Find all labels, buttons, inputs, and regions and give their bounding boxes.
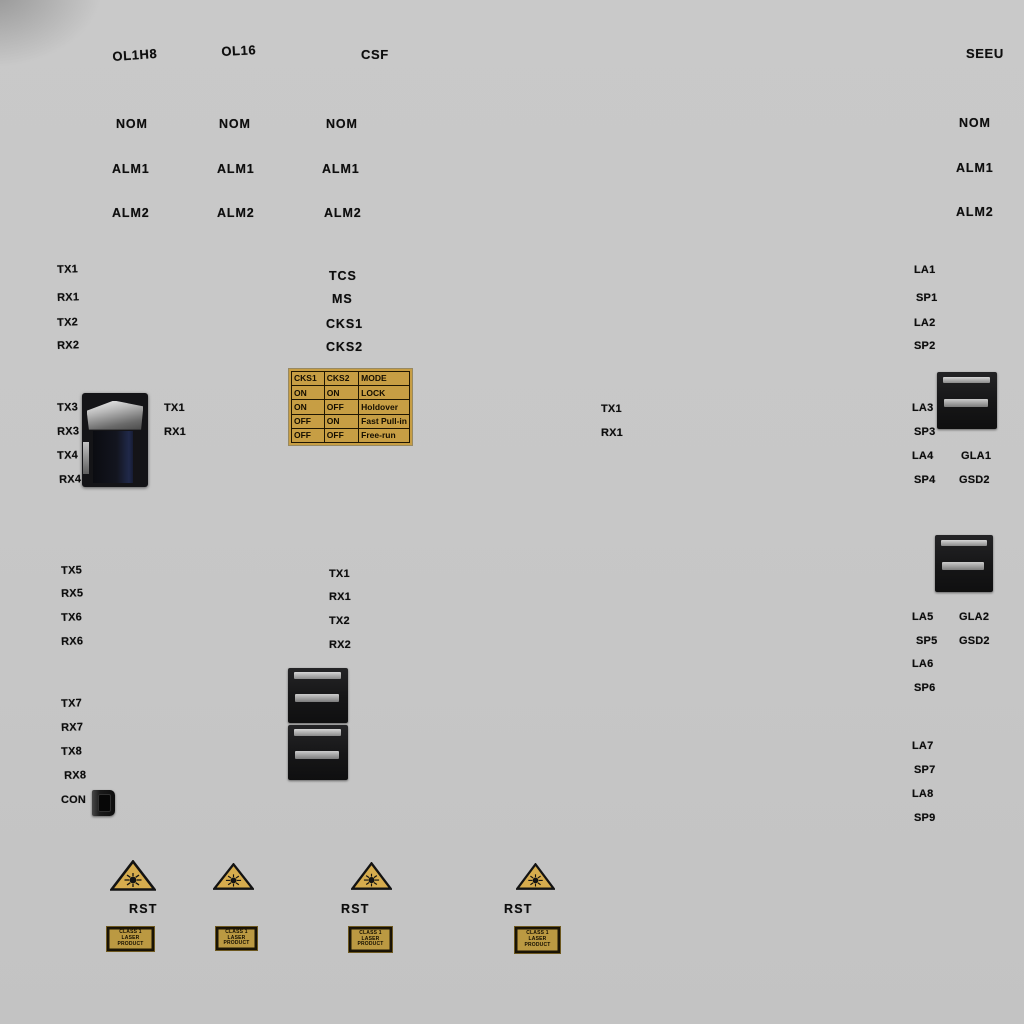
mode-table-row: OFFOFFFree-run [292,428,410,442]
port-label-rx7: RX7 [61,722,83,734]
mode-table-cell: OFF [292,414,325,428]
mode-table-header: CKS1 [292,372,325,386]
connector-latch [295,751,339,759]
mode-table-row: ONOFFHoldover [292,400,410,414]
signal-label-ms: MS [332,293,353,306]
mode-table-cell: ON [324,414,358,428]
con-port[interactable] [92,790,115,816]
led-label-nom: NOM [219,118,251,131]
port-label-la7: LA7 [912,741,933,752]
board-title-ol16: OL16 [221,43,257,58]
port-label-la3: LA3 [912,403,933,414]
port-label-la8: LA8 [912,789,933,800]
port-label-rx5: RX5 [61,588,83,600]
port-label-rx6: RX6 [61,636,83,648]
port-label-sp2: SP2 [914,341,935,352]
port-label-tx2: TX2 [329,616,350,627]
connector-part [83,442,89,474]
led-label-alm2: ALM2 [217,207,255,220]
sticker-line: PRODUCT [357,942,383,948]
port-label-la1: LA1 [914,265,935,276]
connector-latch [294,672,341,679]
port-label-gsd2: GSD2 [959,636,990,647]
board-title-csf: CSF [361,48,389,61]
fiber-connector-right-top[interactable] [937,372,997,429]
led-label-alm1: ALM1 [217,163,255,176]
led-label-alm2: ALM2 [112,207,150,220]
port-label-rx2: RX2 [329,640,351,651]
laser-warning-icon [110,860,156,891]
port-label-tx7: TX7 [61,698,82,710]
port-label-con: CON [61,795,86,806]
sticker-line: PRODUCT [524,943,550,949]
port-label-sp3: SP3 [914,427,935,438]
mode-table-cell: LOCK [359,386,410,400]
fiber-connector-center-top[interactable] [288,668,348,723]
signal-label-tcs: TCS [329,270,357,283]
clock-mode-table: CKS1CKS2MODEONONLOCKONOFFHoldoverOFFONFa… [289,369,412,445]
port-label-tx2: TX2 [57,317,78,329]
connector-latch [944,399,988,407]
port-label-gsd2: GSD2 [959,475,990,486]
connector-latch [942,562,984,570]
class1-laser-sticker: CLASS 1LASERPRODUCT [515,927,560,953]
class1-laser-sticker: CLASS 1LASERPRODUCT [349,927,392,952]
led-label-alm1: ALM1 [322,163,360,176]
sticker-line: PRODUCT [117,942,143,948]
fiber-connector-center-bottom[interactable] [288,725,348,780]
port-label-tx1: TX1 [57,264,78,276]
connector-socket [98,794,110,813]
port-label-rx8: RX8 [64,770,86,782]
port-label-sp6: SP6 [914,683,935,694]
mode-table-cell: ON [292,386,325,400]
board-title-ol1h8: OL1H8 [112,47,158,63]
led-label-nom: NOM [959,117,991,130]
port-label-sp1: SP1 [916,293,937,304]
port-label-la2: LA2 [914,318,935,329]
port-label-rx1: RX1 [57,292,79,304]
telecom-equipment-front-panel: OL1H8OL16CSFSEEUNOMNOMNOMNOMALM1ALM1ALM1… [0,0,1024,1024]
mode-table-row: OFFONFast Pull-in [292,414,410,428]
led-label-alm2: ALM2 [956,206,994,219]
port-label-rx3: RX3 [57,426,79,438]
fiber-connector-left[interactable] [82,393,148,487]
fiber-connector-right-mid[interactable] [935,535,993,592]
port-label-gla2: GLA2 [959,612,989,623]
led-label-alm2: ALM2 [324,207,362,220]
rst-label-rst: RST [341,903,370,916]
connector-part [93,431,134,484]
led-label-alm1: ALM1 [956,162,994,175]
port-label-rx1: RX1 [601,428,623,439]
port-label-sp9: SP9 [914,813,935,824]
laser-warning-icon [516,863,555,890]
class1-laser-sticker: CLASS 1LASERPRODUCT [107,927,154,951]
port-label-sp5: SP5 [916,636,937,647]
board-title-seeu: SEEU [966,47,1004,60]
mode-table-row: ONONLOCK [292,386,410,400]
mode-table-cell: OFF [324,428,358,442]
port-label-tx6: TX6 [61,612,82,624]
connector-latch [941,540,987,547]
port-label-la6: LA6 [912,659,933,670]
mode-table-header: MODE [359,372,410,386]
laser-warning-icon [213,863,254,890]
port-label-tx5: TX5 [61,565,82,577]
port-label-rx2: RX2 [57,340,79,352]
connector-latch [294,729,341,736]
port-label-tx3: TX3 [57,402,78,414]
led-label-alm1: ALM1 [112,163,150,176]
port-label-tx4: TX4 [57,450,78,462]
mode-table-cell: Fast Pull-in [359,414,410,428]
connector-part [87,401,144,430]
mode-table-cell: Holdover [359,400,410,414]
connector-latch [295,694,339,702]
mode-table-cell: OFF [292,428,325,442]
port-label-tx1: TX1 [164,403,185,414]
port-label-tx1: TX1 [329,569,350,580]
led-label-nom: NOM [326,118,358,131]
mode-table-cell: ON [324,386,358,400]
mode-table-header: CKS2 [324,372,358,386]
signal-label-cks2: CKS2 [326,341,363,354]
port-label-rx1: RX1 [164,427,186,438]
mode-table-cell: OFF [324,400,358,414]
connector-latch [943,377,990,384]
led-label-nom: NOM [116,118,148,131]
mode-table-cell: Free-run [359,428,410,442]
laser-warning-icon [351,862,392,890]
signal-label-cks1: CKS1 [326,318,363,331]
port-label-tx1: TX1 [601,404,622,415]
rst-label-rst: RST [504,903,533,916]
port-label-sp7: SP7 [914,765,935,776]
port-label-rx4: RX4 [59,474,81,486]
mode-table-cell: ON [292,400,325,414]
port-label-la5: LA5 [912,612,933,623]
port-label-tx8: TX8 [61,746,82,758]
port-label-sp4: SP4 [914,475,935,486]
sticker-line: PRODUCT [223,941,249,947]
port-label-rx1: RX1 [329,592,351,603]
port-label-gla1: GLA1 [961,451,991,462]
port-label-la4: LA4 [912,451,933,462]
rst-label-rst: RST [129,903,158,916]
class1-laser-sticker: CLASS 1LASERPRODUCT [216,927,257,950]
